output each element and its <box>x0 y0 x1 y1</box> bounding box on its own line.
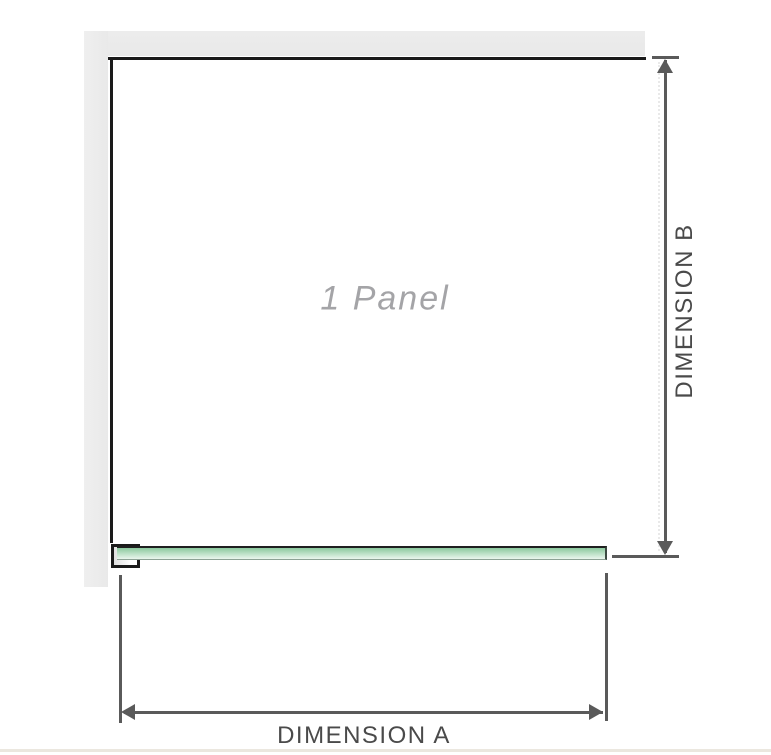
wall-strip-left <box>84 31 108 587</box>
wall-strip-top <box>84 31 645 56</box>
dimension-a-line <box>124 711 603 714</box>
dimension-b-guide-dashed-line <box>658 62 660 551</box>
dimension-a-left-extension-line <box>119 575 122 723</box>
arrow-right-icon <box>589 704 603 720</box>
panel-count-label: 1 Panel <box>320 280 449 319</box>
arrow-left-icon <box>121 704 135 720</box>
bottom-divider-line <box>0 749 771 752</box>
panel-dimension-diagram: 1 Panel DIMENSION B DIMENSION A <box>0 0 771 755</box>
glass-panel-bar <box>117 546 607 560</box>
dimension-a-right-extension-line <box>605 573 608 721</box>
arrow-up-icon <box>657 59 673 73</box>
panel-top-edge-line <box>108 57 646 60</box>
dimension-a-label: DIMENSION A <box>277 722 451 750</box>
dimension-b-bottom-tick <box>612 555 679 558</box>
arrow-down-icon <box>657 541 673 555</box>
dimension-b-line <box>664 60 667 553</box>
dimension-b-label: DIMENSION B <box>671 223 699 398</box>
panel-left-edge-line <box>110 57 113 543</box>
